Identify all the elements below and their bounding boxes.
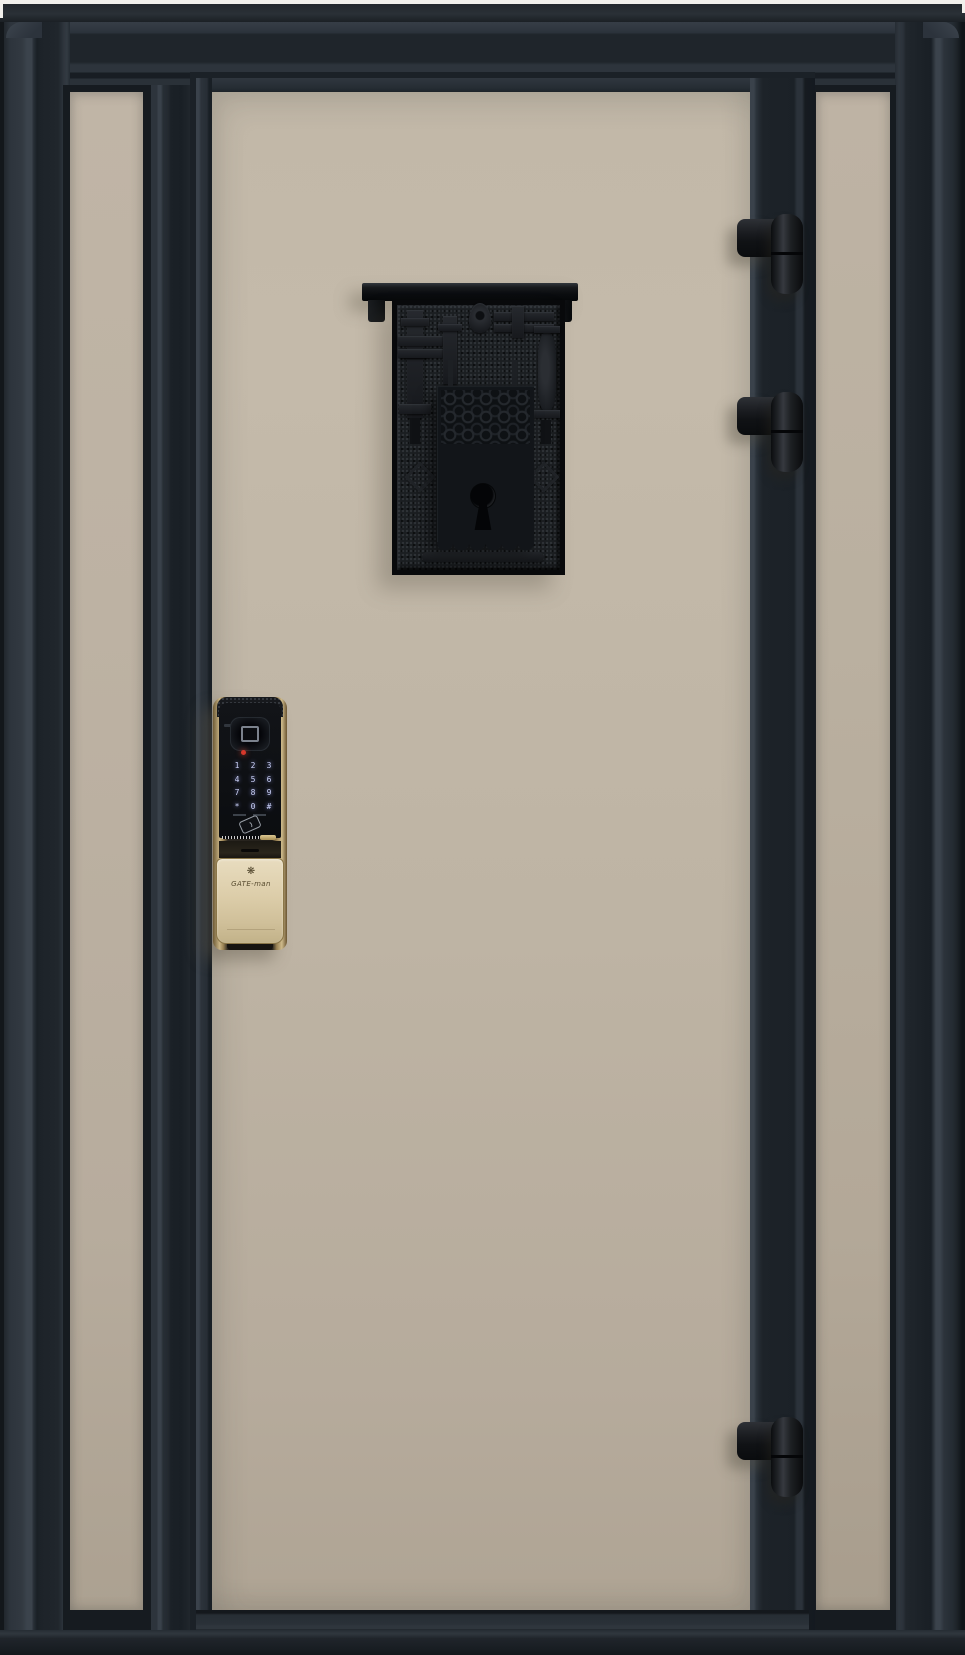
key-cover-slot xyxy=(241,849,259,852)
plate-motif-right-slot xyxy=(541,420,551,444)
hinge-middle-block xyxy=(737,397,774,435)
frame-sill xyxy=(0,1638,965,1655)
brand-name: GATE-man xyxy=(217,879,285,889)
keypad-key-9: 9 xyxy=(261,786,277,799)
brand-logo-icon: ❋ xyxy=(217,866,285,878)
cornice-corner-left xyxy=(6,22,42,38)
keypad-key-4: 4 xyxy=(229,773,245,786)
plate-panel-scalloped-edge xyxy=(437,542,534,557)
lock-base xyxy=(227,944,273,950)
keypad-key-5: 5 xyxy=(245,773,261,786)
door-leaf-left-stile xyxy=(196,78,212,1632)
keypad-key-1: 1 xyxy=(229,759,245,772)
keypad-key-2: 2 xyxy=(245,759,261,772)
frame-left-jamb xyxy=(0,22,70,1637)
hinge-bottom-seam xyxy=(771,1455,803,1458)
frame-top-slab xyxy=(0,4,965,22)
left-sidelight-panel xyxy=(70,92,143,1610)
plate-lintel-tab-left xyxy=(368,300,385,322)
hinge-top-seam xyxy=(771,252,803,255)
hinge-bottom-block xyxy=(737,1422,774,1460)
keypad-key-0: 0 xyxy=(245,800,261,813)
handle-panel-seam xyxy=(227,929,275,930)
door-product-photo: 1 2 3 4 5 6 7 8 9 * 0 # ❋ GATE-man xyxy=(0,0,965,1655)
plate-motif-left-base xyxy=(399,404,431,414)
door-leaf-bottom-rail xyxy=(196,1610,809,1632)
door-leaf-right-stile xyxy=(750,78,815,1632)
keypad-key-star: * xyxy=(229,800,245,813)
lock-handle-panel: ❋ GATE-man xyxy=(216,858,284,944)
plate-scrollwork-band xyxy=(441,390,530,444)
left-mullion xyxy=(151,85,190,1632)
contactless-wave-icon xyxy=(243,820,254,831)
plate-motif-left-slot xyxy=(410,418,420,444)
background-edge-left xyxy=(0,0,3,18)
fingerprint-window-icon xyxy=(241,726,259,742)
hinge-top-block xyxy=(737,219,774,257)
keypad-key-6: 6 xyxy=(261,773,277,786)
status-led xyxy=(241,750,246,755)
door-leaf-top-rail xyxy=(196,78,809,92)
hinge-middle-seam xyxy=(771,430,803,433)
keypad-key-7: 7 xyxy=(229,786,245,799)
plate-motif-center-capital xyxy=(438,324,462,331)
hinge-bottom xyxy=(737,1417,805,1499)
plate-motif-right-base xyxy=(534,410,560,418)
plate-motif-spade xyxy=(469,303,491,333)
plate-motif-left-column xyxy=(407,310,423,418)
keypad-key-3: 3 xyxy=(261,759,277,772)
keypad-key-8: 8 xyxy=(245,786,261,799)
plate-motif-right-capital xyxy=(534,326,560,333)
frame-right-jamb xyxy=(895,22,965,1637)
plate-motif-right-beam xyxy=(494,312,554,321)
keypad-divider-left xyxy=(233,814,246,816)
keypad-key-hash: # xyxy=(261,800,277,813)
plate-motif-right-baluster xyxy=(538,332,556,412)
plate-motif-left-capital xyxy=(401,318,429,326)
frame-sill-step xyxy=(0,1630,965,1638)
plate-motif-right-connector xyxy=(512,306,524,338)
hinge-top xyxy=(737,214,805,296)
plate-lintel xyxy=(362,283,578,301)
smart-lock: 1 2 3 4 5 6 7 8 9 * 0 # ❋ GATE-man xyxy=(213,697,287,950)
hinge-middle xyxy=(737,392,805,474)
lock-gold-tab xyxy=(260,835,276,840)
right-sidelight-panel xyxy=(816,92,890,1610)
